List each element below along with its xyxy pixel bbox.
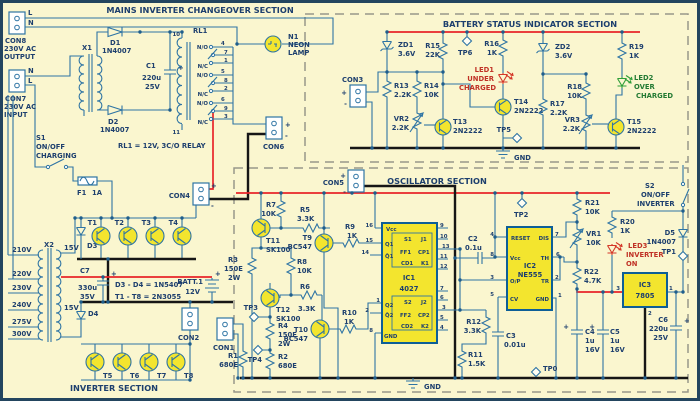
rl1-pin-3: 3: [224, 114, 228, 120]
led1-desc1: UNDER: [467, 75, 494, 83]
s1-ref: S1: [36, 134, 46, 142]
r8-ref: R8: [297, 258, 307, 266]
ic1-pin-4: 4: [440, 325, 444, 331]
r6-ref: R6: [300, 283, 310, 291]
con4-plus: +: [211, 182, 217, 190]
r21-value: 10K: [585, 208, 600, 216]
note-t1-t8: T1 - T8 = 2N3055: [115, 293, 181, 301]
tp4-label: TP4: [248, 356, 263, 364]
d1-ref: D1: [110, 39, 121, 47]
ic1-pin-5: 5: [440, 315, 444, 321]
r15-ref: R15: [425, 42, 440, 50]
ic1-q1bar: Q̄1: [385, 253, 394, 260]
c7-value2: 35V: [80, 293, 95, 301]
rl1-pin-2: 2: [224, 86, 228, 92]
vr2-value: 2.2K: [392, 124, 410, 132]
s2-desc2: INVERTER: [637, 200, 675, 208]
con7-desc1: 230V AC: [4, 103, 36, 111]
r9-ref: R9: [345, 223, 355, 231]
con8-terminal-l: L: [28, 9, 33, 17]
c5-value2: 16V: [610, 346, 625, 354]
ic1-pin-9: 9: [440, 223, 444, 229]
c6-value2: 25V: [653, 334, 668, 342]
con6-plus: +: [285, 121, 291, 129]
c3-ref: C3: [506, 332, 516, 340]
d5-value: 1N4007: [647, 238, 677, 246]
c2-value: 0.1u: [465, 244, 482, 252]
ic1-ref: IC1: [403, 274, 416, 282]
ic3-part: 7805: [636, 292, 655, 300]
rl1-pin-10: 10: [172, 32, 180, 38]
con8-desc2: OUTPUT: [4, 53, 35, 61]
c5-ref: C5: [610, 328, 620, 336]
c5-plus: +: [589, 323, 595, 331]
rl1-pin-8: 8: [224, 78, 228, 84]
ic1-pin-10: 10: [440, 234, 448, 240]
c7-plus: +: [111, 270, 117, 278]
rl1-pin-7: 7: [224, 50, 228, 56]
led3-ref: LED3: [628, 242, 648, 250]
x2-tap-240v: 240V: [12, 301, 32, 309]
ic1-q1: Q1: [385, 242, 394, 248]
r20-ref: R20: [620, 218, 635, 226]
t9-value: BC547: [288, 243, 313, 251]
ic1-q2bar: Q̄2: [385, 312, 394, 319]
batt1-plus: +: [215, 270, 221, 278]
t10-ref: T10: [294, 326, 308, 334]
f1-value: 1A: [92, 189, 103, 197]
con7-terminal-n: N: [28, 67, 34, 75]
t2-ref: T2: [115, 219, 125, 227]
tp2-label: TP2: [514, 211, 529, 219]
ic1-pin-1: 1: [376, 298, 380, 304]
rl1-pin-1: 1: [224, 58, 228, 64]
ic1-pin-8: 8: [369, 328, 373, 334]
ic1-q2: Q2: [385, 303, 394, 309]
schematic-canvas: MAINS INVERTER CHANGEOVER SECTION BATTER…: [0, 0, 700, 401]
led1-ref: LED1: [475, 66, 495, 74]
con3-label: CON3: [342, 76, 363, 84]
ic1-k2: K2: [421, 324, 429, 330]
ic2-pin-5: 5: [490, 292, 494, 298]
x2-label: X2: [44, 241, 54, 249]
zd1-value: 3.6V: [398, 50, 416, 58]
ic1-pin-13: 13: [442, 244, 450, 250]
ic2-part: NE555: [518, 271, 543, 279]
t15-ref: T15: [627, 118, 641, 126]
t14-ref: T14: [514, 98, 528, 106]
r5-ref: R5: [300, 206, 310, 214]
t6-ref: T6: [130, 372, 140, 380]
t11-ref: T11: [266, 237, 280, 245]
ic2-pin-2: 2: [555, 275, 559, 281]
ic1-cd2: CD2: [401, 324, 413, 330]
r3-ref: R3: [228, 256, 238, 264]
led2-desc2: CHARGED: [636, 92, 673, 100]
r13-ref: R13: [394, 82, 409, 90]
tp3-label: TP3: [244, 304, 259, 312]
ic2-th: TH: [541, 256, 550, 262]
ic1-pin-16: 16: [365, 223, 373, 229]
con6-label: CON6: [263, 143, 284, 151]
t3-ref: T3: [142, 219, 152, 227]
ic3-pin-2: 2: [648, 311, 652, 317]
zd2-ref: ZD2: [555, 43, 571, 51]
ic1-pin-3: 3: [442, 305, 446, 311]
con8-terminal-n: N: [28, 19, 34, 27]
ic2-pin-1: 1: [558, 293, 562, 299]
n1-desc2: LAMP: [288, 49, 309, 57]
r12-ref: R12: [466, 318, 481, 326]
tp5-label: TP5: [497, 126, 512, 134]
d1-value: 1N4007: [102, 47, 132, 55]
ic2-dis: DIS: [539, 236, 549, 242]
t9-ref: T9: [303, 234, 313, 242]
circuit-schematic: MAINS INVERTER CHANGEOVER SECTION BATTER…: [0, 0, 700, 401]
s2-desc1: ON/OFF: [641, 191, 670, 199]
ic2-tr: TR: [541, 279, 550, 285]
r7-ref: R7: [266, 201, 276, 209]
r17-ref: R17: [550, 100, 565, 108]
x2-tap-230v: 230V: [12, 284, 32, 292]
ic1-pin-7: 7: [440, 286, 444, 292]
ic1-pin-12: 12: [440, 264, 448, 270]
ic1-vcc: Vcc: [386, 227, 397, 233]
r16-ref: R16: [484, 40, 499, 48]
ic2-cv: CV: [510, 297, 519, 303]
note-d3-d4: D3 - D4 = 1N5407: [115, 281, 183, 289]
tp1-label: TP1: [662, 248, 677, 256]
mains-section-title: MAINS INVERTER CHANGEOVER SECTION: [106, 5, 294, 15]
rl1-label: RL1: [193, 27, 208, 35]
ic1-pin-11: 11: [440, 254, 448, 260]
d2-value: 1N4007: [100, 126, 130, 134]
ic1-pin-6: 6: [440, 295, 444, 301]
r19-ref: R19: [629, 43, 644, 51]
rl1-no-label: N/O: [197, 45, 208, 51]
ic1-gnd: GND: [384, 334, 398, 340]
led2-desc1: OVER: [634, 83, 655, 91]
r7-value: 10K: [261, 210, 276, 218]
r11-value: 1.5K: [468, 360, 486, 368]
r14-value: 10K: [424, 91, 439, 99]
n1-ref: N1: [288, 33, 299, 41]
ic2-pin-3: 3: [490, 275, 494, 281]
con5-label: CON5: [323, 179, 344, 187]
c1-value1: 220u: [142, 74, 161, 82]
s1-desc1: ON/OFF: [36, 143, 65, 151]
ic1-pin-2: 2: [365, 308, 369, 314]
rl1-pin-11: 11: [172, 130, 180, 136]
ic1-pin-15: 15: [365, 238, 373, 244]
batt1-value: 12V: [185, 288, 200, 296]
r6-value: 3.3K: [298, 305, 316, 313]
t5-ref: T5: [103, 372, 113, 380]
r13-value: 2.2K: [394, 91, 412, 99]
ic1-cp2: CP2: [418, 313, 430, 319]
c2-ref: C2: [468, 235, 478, 243]
rl1-no-label: N/O: [197, 73, 208, 79]
con8-label: CON8: [5, 37, 26, 45]
t13-ref: T13: [453, 118, 467, 126]
battery-section-title: BATTERY STATUS INDICATOR SECTION: [443, 19, 617, 29]
vr3-ref: VR3: [565, 116, 580, 124]
con1-label: CON1: [213, 344, 234, 352]
ic1-ff2: FF2: [400, 313, 411, 319]
r10-ref: R10: [342, 309, 357, 317]
t1-ref: T1: [88, 219, 98, 227]
x1-label: X1: [82, 44, 92, 52]
led3-desc2: ON: [626, 260, 638, 268]
con4-minus: -: [211, 202, 214, 210]
r14-ref: R14: [424, 82, 439, 90]
con5-minus: -: [343, 188, 346, 196]
c4-value1: 1u: [585, 337, 595, 345]
c6-plus: +: [684, 317, 690, 325]
r12-value: 3.3K: [464, 327, 482, 335]
vr1-ref: VR1: [586, 230, 601, 238]
f1-ref: F1: [77, 189, 87, 197]
ic3-pin-3: 3: [616, 286, 620, 292]
ic1-cp1: CP1: [418, 250, 430, 256]
r4-ref: R4: [278, 322, 288, 330]
con7-terminal-l: L: [28, 77, 33, 85]
battery-gnd-label: GND: [514, 154, 531, 162]
d2-ref: D2: [108, 118, 119, 126]
r9-value: 1K: [347, 232, 358, 240]
r8-value: 10K: [297, 267, 312, 275]
x2-tap-15v-a: 15V: [64, 244, 79, 252]
rl1-no-label: N/O: [197, 101, 208, 107]
x2-tap-210v: 210V: [12, 246, 32, 254]
ic1-s1: S1: [404, 237, 412, 243]
x2-tap-220v: 220V: [12, 270, 32, 278]
r19-value: 1K: [629, 52, 640, 60]
c1-ref: C1: [146, 62, 156, 70]
r3-wattage: 2W: [228, 274, 241, 282]
ic1-k1: K1: [421, 261, 429, 267]
connector-con3: + - CON3: [341, 76, 366, 108]
oscillator-section-title: OSCILLATOR SECTION: [387, 176, 487, 186]
con6-minus: -: [285, 132, 288, 140]
zd1-ref: ZD1: [398, 41, 414, 49]
r2-value: 680E: [278, 362, 297, 370]
ic3-ref: IC3: [639, 281, 652, 289]
r15-value: 22K: [425, 51, 440, 59]
c7-ref: C7: [80, 267, 90, 275]
batt1-ref: BATT.1: [177, 278, 203, 286]
osc-gnd-label: GND: [424, 383, 441, 391]
s1-desc2: CHARGING: [36, 152, 77, 160]
r3-value: 150E: [224, 265, 243, 273]
ic2-ref: IC2: [524, 262, 537, 270]
r22-ref: R22: [584, 268, 599, 276]
n1-desc1: NEON: [288, 41, 310, 49]
r21-ref: R21: [585, 199, 600, 207]
d4-ref: D4: [88, 310, 99, 318]
r18-value: 10K: [567, 92, 582, 100]
r20-value: 1K: [620, 227, 631, 235]
r5-value: 3.3K: [297, 215, 315, 223]
rl1-nc-label: N/C: [198, 120, 208, 126]
r16-value: 1K: [487, 49, 498, 57]
t7-ref: T7: [157, 372, 167, 380]
r1-ref: R1: [228, 352, 238, 360]
t13-value: 2N2222: [453, 127, 483, 135]
r10-value: 1K: [344, 318, 355, 326]
x2-tap-275v: 275V: [12, 318, 32, 326]
t15-value: 2N2222: [627, 127, 657, 135]
rl1-nc-label: N/C: [198, 64, 208, 70]
ic1-pin-14: 14: [361, 250, 369, 256]
c4-plus: +: [563, 323, 569, 331]
d5-ref: D5: [665, 229, 676, 237]
tp6-label: TP6: [458, 49, 473, 57]
x2-tap-15v-b: 15V: [64, 304, 79, 312]
led3-desc1: INVERTER: [626, 251, 664, 259]
con8-desc1: 230V AC: [4, 45, 36, 53]
t14-value: 2N2222: [514, 107, 544, 115]
ic1-j2: J2: [420, 300, 427, 306]
r22-value: 4.7K: [584, 277, 602, 285]
rl1-nc-label: N/C: [198, 92, 208, 98]
c4-value2: 16V: [585, 346, 600, 354]
ic1-s2: S2: [404, 300, 412, 306]
con3-plus: +: [341, 89, 347, 97]
ic2-pin-7: 7: [555, 232, 559, 238]
c6-ref: C6: [658, 316, 668, 324]
r1-value: 680E: [219, 361, 238, 369]
c5-value1: 1u: [610, 337, 620, 345]
c6-value1: 220u: [649, 325, 668, 333]
rl1-note: RL1 = 12V, 3C/O RELAY: [118, 142, 206, 150]
rl1-pin-4: 4: [221, 41, 225, 47]
r18-ref: R18: [567, 83, 582, 91]
led1-desc2: CHARGED: [459, 84, 496, 92]
inverter-section-title: INVERTER SECTION: [70, 383, 158, 393]
ic2-op: O/P: [510, 279, 521, 285]
rl1-pin-5: 5: [221, 69, 225, 75]
ic1-part: 4027: [400, 285, 419, 293]
vr3-value: 2.2K: [563, 125, 581, 133]
con3-minus: -: [344, 100, 347, 108]
t4-ref: T4: [169, 219, 179, 227]
con2-label: CON2: [178, 334, 199, 342]
s2-ref: S2: [645, 182, 655, 190]
rl1-pin-6: 6: [221, 97, 225, 103]
led2-ref: LED2: [634, 74, 654, 82]
ic2-vcc: Vcc: [510, 256, 521, 262]
c3-value: 0.01u: [504, 341, 526, 349]
con4-label: CON4: [169, 192, 190, 200]
r2-ref: R2: [278, 353, 288, 361]
t10-value: BC547: [284, 335, 309, 343]
c1-value2: 25V: [145, 83, 160, 91]
ic3-pin-1: 1: [669, 286, 673, 292]
ic1-ff1: FF1: [400, 250, 411, 256]
r11-ref: R11: [468, 351, 483, 359]
ic1-cd1: CD1: [401, 261, 413, 267]
vr1-value: 10K: [586, 239, 601, 247]
zd2-value: 3.6V: [555, 52, 573, 60]
ic2-reset: RESET: [511, 236, 530, 242]
rl1-pin-9: 9: [224, 106, 228, 112]
t12-ref: T12: [276, 306, 290, 314]
ic2-gnd: GND: [536, 297, 550, 303]
vr2-ref: VR2: [394, 115, 409, 123]
x2-tap-300v: 300V: [12, 330, 32, 338]
ic1-j1: J1: [420, 237, 427, 243]
tp0-label: TP0: [543, 365, 558, 373]
c7-value1: 330u: [78, 284, 97, 292]
